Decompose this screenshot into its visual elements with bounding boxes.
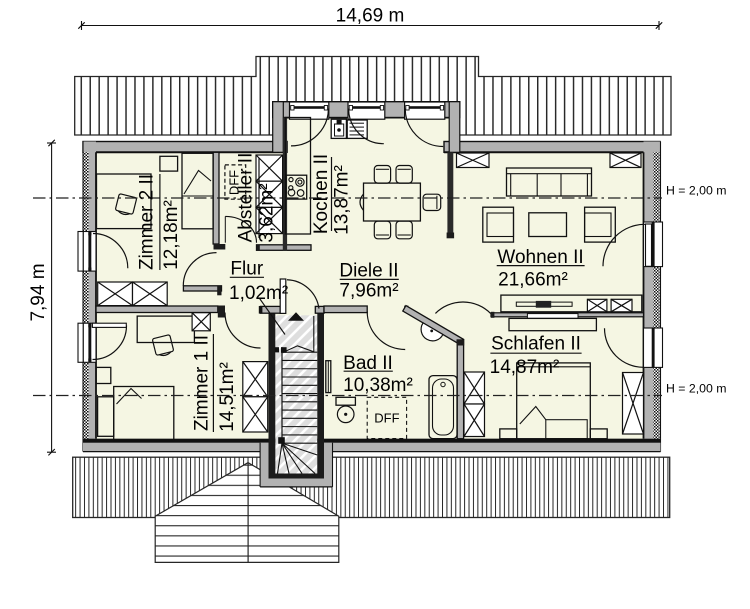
svg-text:Schlafen II: Schlafen II xyxy=(491,334,581,355)
svg-text:Zimmer 2 II: Zimmer 2 II xyxy=(137,174,158,270)
svg-text:Zimmer 1 II: Zimmer 1 II xyxy=(192,335,213,431)
svg-text:14,87m²: 14,87m² xyxy=(490,357,560,378)
svg-text:DFF: DFF xyxy=(374,411,399,426)
svg-text:14,51m²: 14,51m² xyxy=(217,362,238,432)
svg-text:Flur: Flur xyxy=(230,259,263,280)
svg-text:14,69 m: 14,69 m xyxy=(336,6,405,27)
svg-text:Wohnen II: Wohnen II xyxy=(497,247,583,268)
svg-text:12,18m²: 12,18m² xyxy=(161,200,182,270)
svg-text:H = 2,00 m: H = 2,00 m xyxy=(666,184,727,198)
svg-text:Absteller II: Absteller II xyxy=(236,153,257,243)
svg-text:3,62m²: 3,62m² xyxy=(257,183,278,242)
svg-text:DFF: DFF xyxy=(226,170,241,195)
svg-text:1,02m²: 1,02m² xyxy=(229,283,288,304)
svg-text:21,66m²: 21,66m² xyxy=(498,269,568,290)
svg-text:Diele II: Diele II xyxy=(339,261,398,282)
svg-text:10,38m²: 10,38m² xyxy=(343,375,413,396)
svg-text:H = 2,00 m: H = 2,00 m xyxy=(666,382,727,396)
svg-text:Kochen II: Kochen II xyxy=(311,154,332,234)
svg-text:7,94 m: 7,94 m xyxy=(28,263,49,321)
svg-text:13,87m²: 13,87m² xyxy=(332,165,353,235)
svg-text:7,96m²: 7,96m² xyxy=(339,281,398,302)
